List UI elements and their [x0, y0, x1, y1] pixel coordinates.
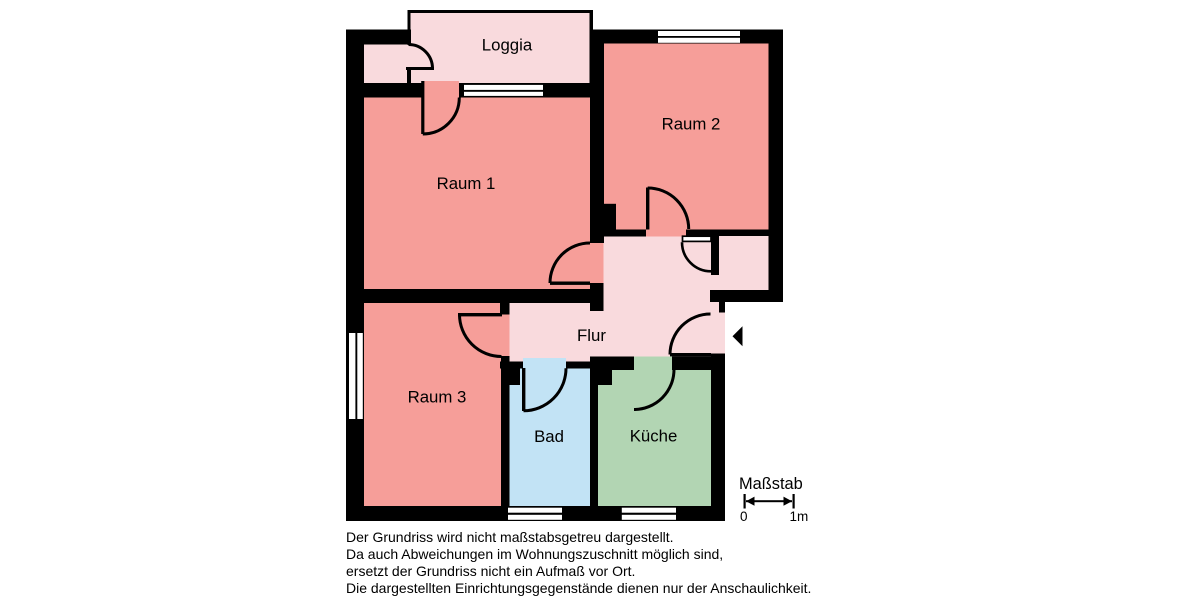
svg-text:0: 0 — [740, 509, 748, 524]
svg-text:Raum 2: Raum 2 — [662, 115, 721, 134]
svg-text:1m: 1m — [790, 509, 809, 524]
svg-text:Bad: Bad — [534, 427, 564, 446]
svg-text:Loggia: Loggia — [482, 36, 533, 55]
svg-text:Der Grundriss wird nicht maßst: Der Grundriss wird nicht maßstabsgetreu … — [346, 529, 674, 545]
svg-text:ersetzt der Grundriss nicht ei: ersetzt der Grundriss nicht ein Aufmaß v… — [346, 563, 635, 579]
svg-text:Flur: Flur — [577, 326, 606, 345]
svg-text:Maßstab: Maßstab — [739, 475, 803, 493]
svg-text:Raum 3: Raum 3 — [408, 388, 467, 407]
svg-text:Raum 1: Raum 1 — [437, 174, 496, 193]
svg-text:Die dargestellten Einrichtungs: Die dargestellten Einrichtungsgegenständ… — [346, 580, 811, 596]
svg-text:Küche: Küche — [630, 427, 678, 446]
svg-text:Da auch Abweichungen im Wohnun: Da auch Abweichungen im Wohnungszuschnit… — [346, 546, 723, 562]
